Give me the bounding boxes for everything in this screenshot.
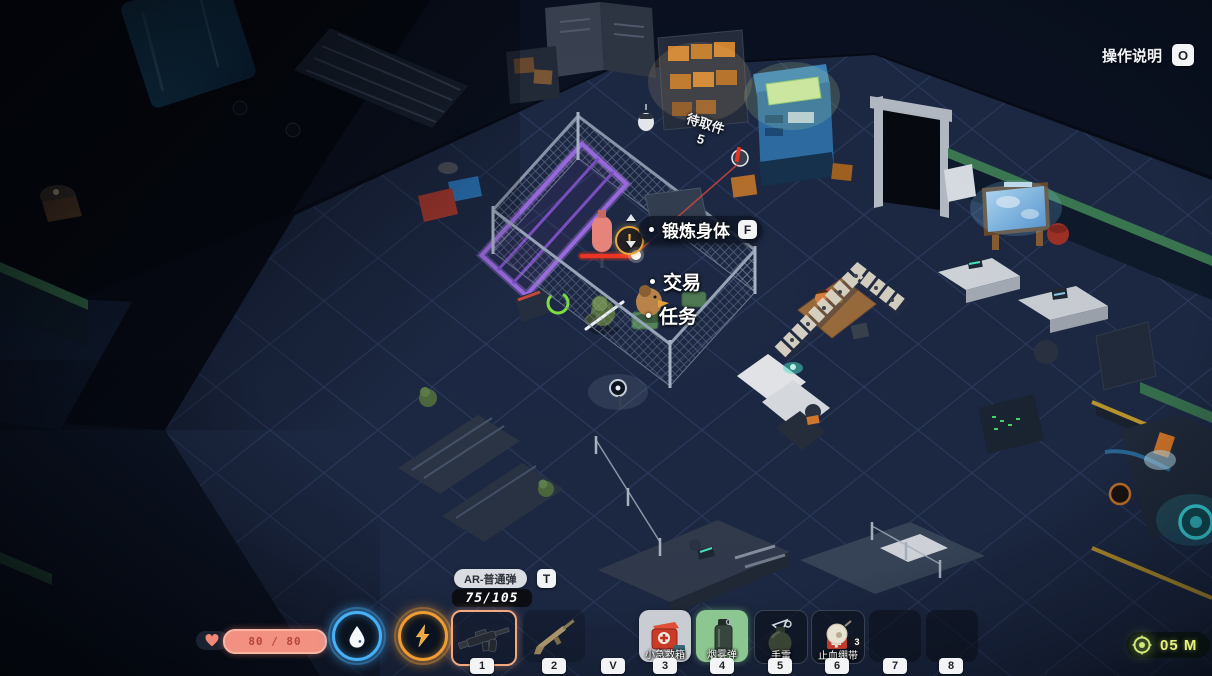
- interact-key-badge: F: [738, 220, 757, 239]
- hotbar-slot-6[interactable]: 3 止血绷带: [811, 610, 865, 664]
- menu-item-trade[interactable]: 交易: [650, 268, 701, 295]
- water-button[interactable]: [332, 611, 382, 661]
- help-key-badge: O: [1172, 44, 1194, 66]
- weapon-swap-key-badge: T: [537, 569, 556, 588]
- ammo-counter: 75/105: [452, 589, 532, 607]
- hotbar-slot-8[interactable]: [926, 610, 978, 662]
- slot-key-8: 8: [939, 658, 963, 674]
- pickup-label: 待取件 5: [665, 106, 741, 157]
- help-hint[interactable]: 操作说明 O: [1102, 44, 1194, 66]
- hotbar-slot-4[interactable]: 烟雾弹: [696, 610, 748, 662]
- slot-key-7: 7: [883, 658, 907, 674]
- lightning-bolt-icon: [413, 624, 433, 648]
- hotbar-slot-3[interactable]: 小急救箱: [639, 610, 691, 662]
- help-label: 操作说明: [1102, 45, 1162, 66]
- menu-item-trade-label: 交易: [663, 268, 701, 295]
- slot-key-6: 6: [825, 658, 849, 674]
- chevron-down-icon[interactable]: [626, 241, 636, 248]
- objective-distance-value: 05 M: [1160, 637, 1197, 654]
- menu-item-train-label: 锻炼身体: [662, 217, 730, 242]
- menu-item-train[interactable]: 锻炼身体 F: [639, 216, 762, 243]
- health-bar: 80 / 80: [223, 629, 327, 654]
- slot-key-1: 1: [470, 658, 494, 674]
- hotbar-slot-2[interactable]: [523, 610, 585, 662]
- rifle-icon: [527, 614, 581, 658]
- objective-distance: 05 M: [1126, 632, 1210, 658]
- chevron-up-icon[interactable]: [626, 214, 636, 221]
- game-screen: 操作说明 O 待取件 5 ! 锻炼身体 F 交易 任务 80 / 80: [0, 0, 1212, 676]
- assault-rifle-icon: [457, 618, 511, 658]
- extraction-marker-icon: [1132, 635, 1152, 655]
- slot-key-3: 3: [653, 658, 677, 674]
- bullet-dot-icon: [650, 279, 655, 284]
- slot-key-5: 5: [768, 658, 792, 674]
- hotbar-slot-5[interactable]: 手雷: [754, 610, 808, 664]
- health-value: 80 / 80: [248, 635, 301, 648]
- slot-key-4: 4: [710, 658, 734, 674]
- energy-button[interactable]: [398, 611, 448, 661]
- weapon-name-pill: AR-普通弹: [454, 569, 527, 588]
- menu-item-quest[interactable]: 任务: [646, 302, 697, 329]
- water-drop-icon: [347, 624, 367, 648]
- menu-item-quest-label: 任务: [659, 302, 697, 329]
- slot-key-v: V: [601, 658, 625, 674]
- hotbar-slot-7[interactable]: [869, 610, 921, 662]
- bullet-dot-icon: [649, 227, 654, 232]
- bullet-dot-icon: [646, 313, 651, 318]
- slot-key-2: 2: [542, 658, 566, 674]
